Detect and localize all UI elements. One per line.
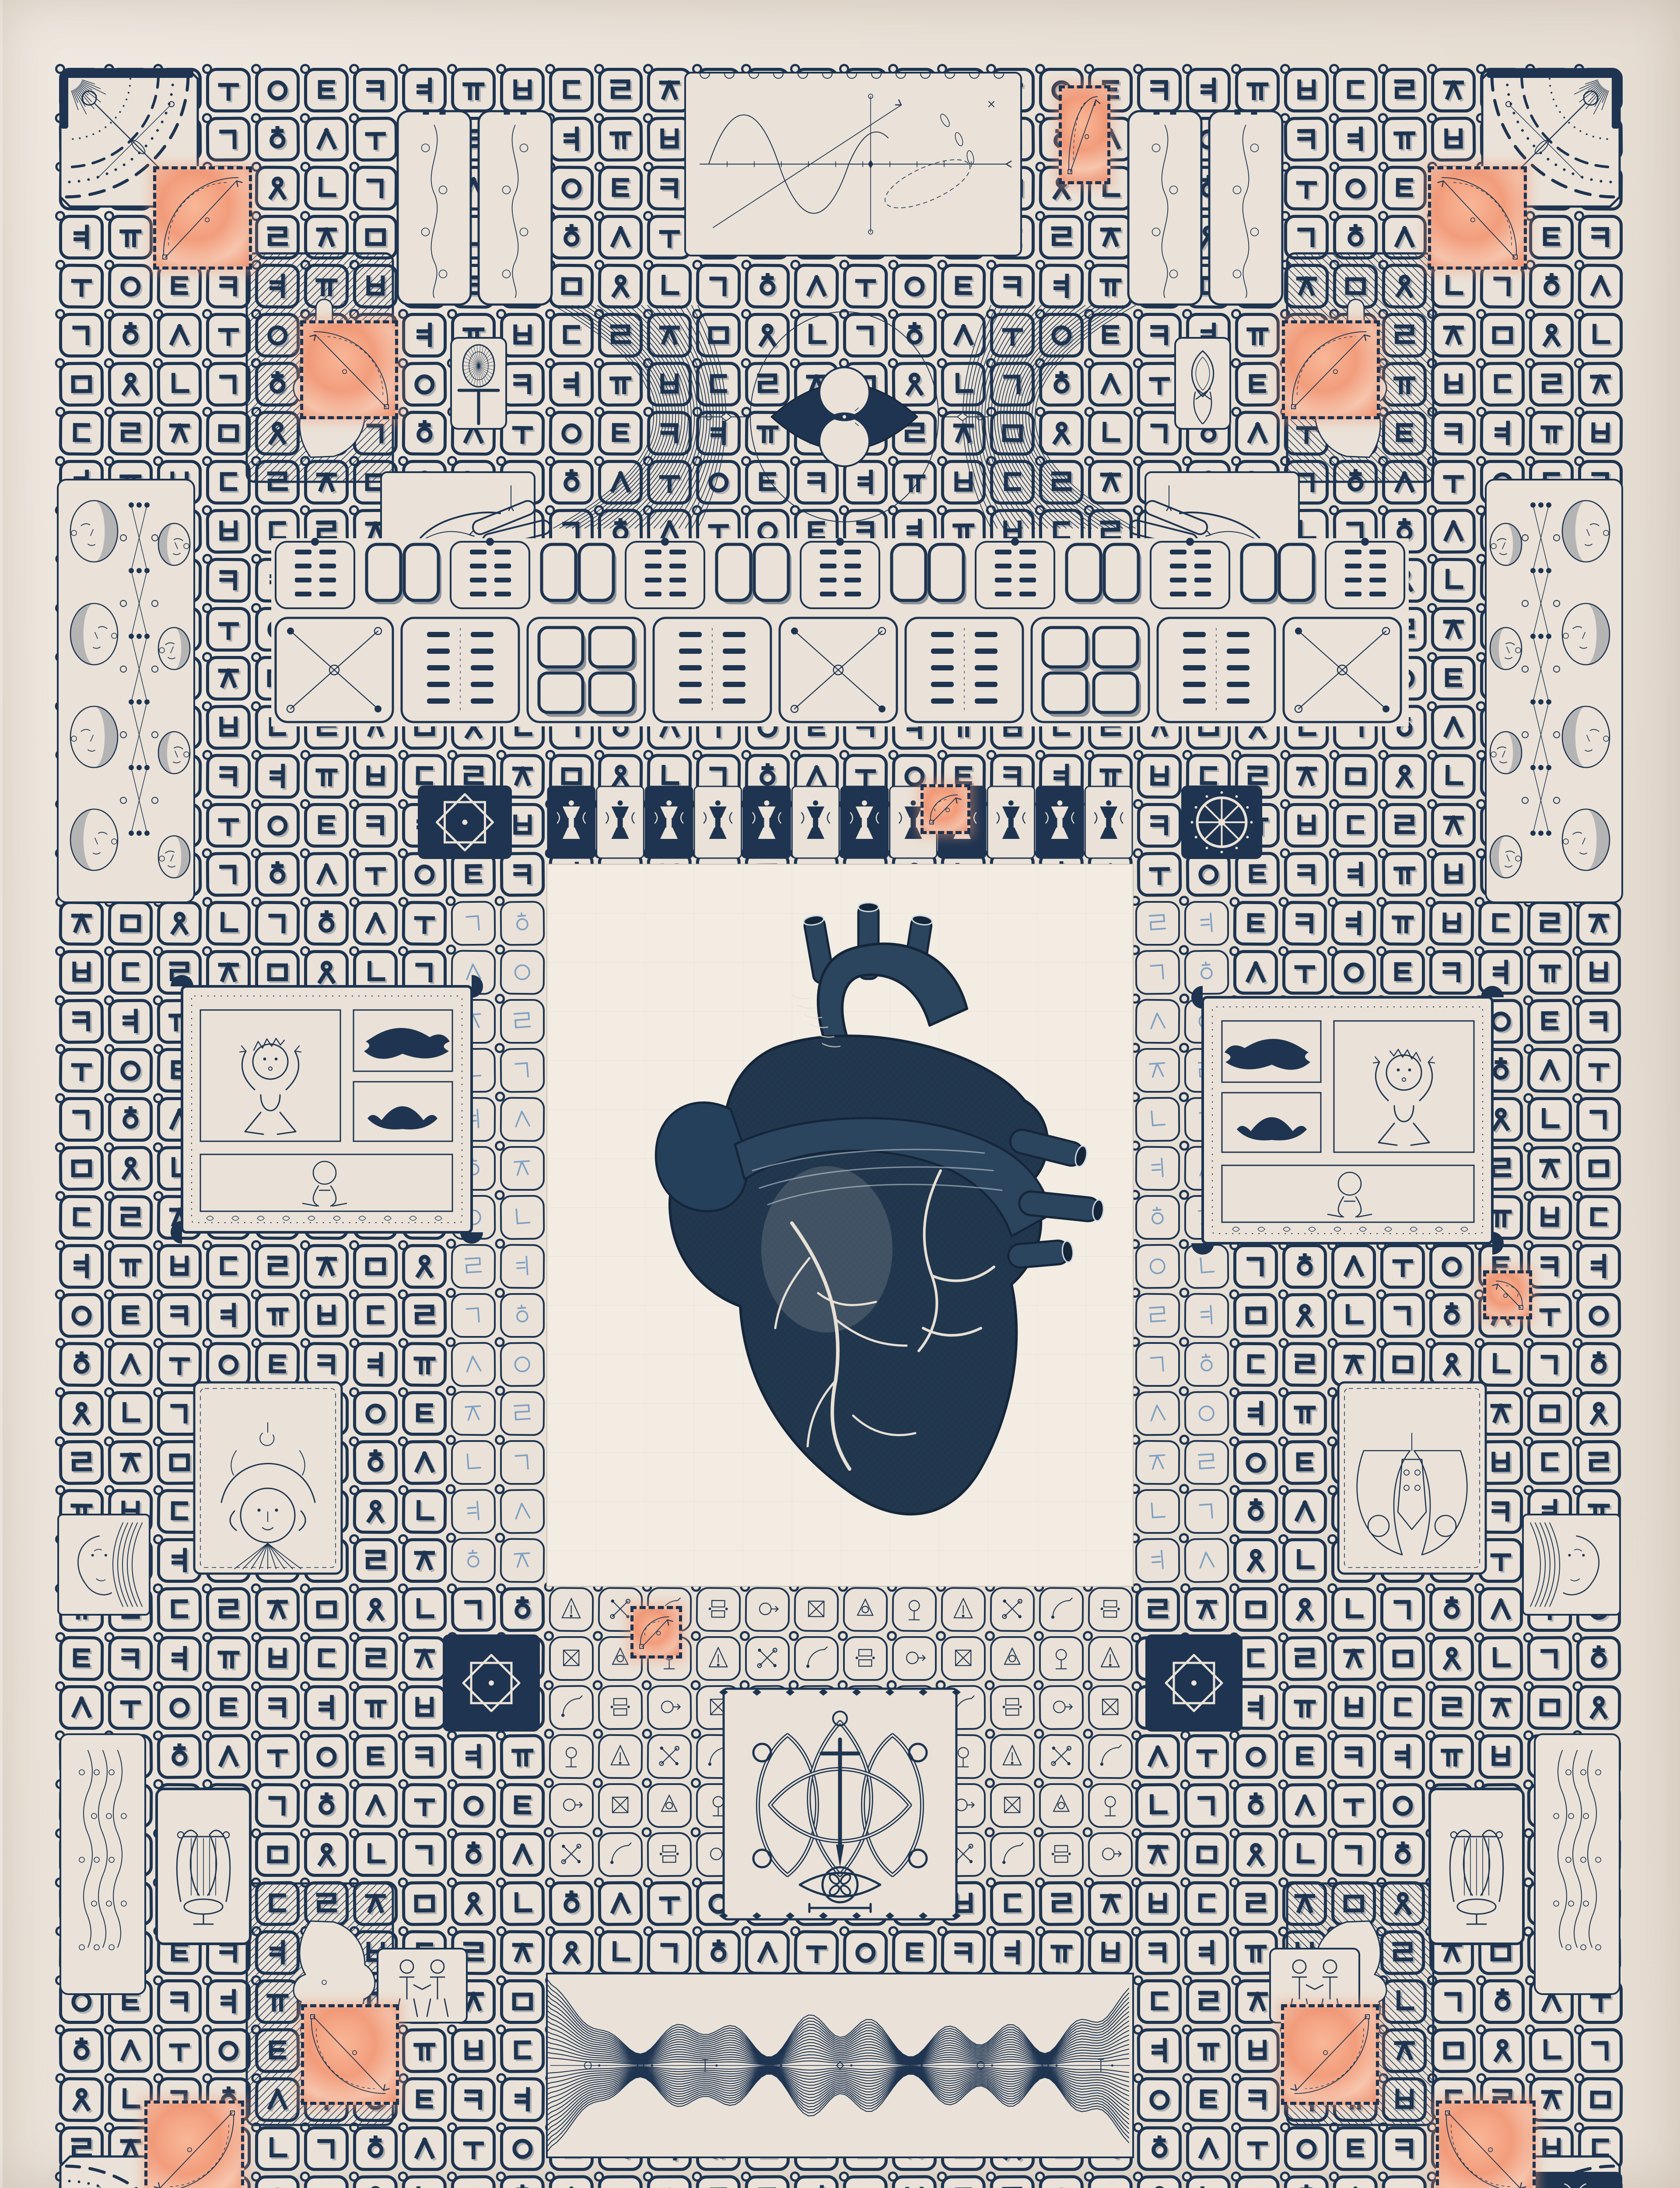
glyph-tile xyxy=(1431,754,1476,799)
glyph-tile xyxy=(59,411,104,456)
glyph-tile xyxy=(1088,1832,1133,1877)
glyph-tile xyxy=(1578,2028,1623,2073)
glyph-tile xyxy=(1235,2126,1280,2171)
glyph-tile xyxy=(1282,1832,1327,1877)
glyph-tile xyxy=(1478,901,1523,946)
glyph-tile xyxy=(1235,2028,1280,2073)
glyph-tile xyxy=(451,1783,496,1828)
glyph-tile xyxy=(1135,1440,1180,1485)
glyph-tile xyxy=(1284,2126,1329,2171)
glyph-tile xyxy=(402,411,447,456)
glyph-tile xyxy=(451,1244,496,1289)
glyph-tile xyxy=(255,117,300,162)
glyph-tile xyxy=(1331,1734,1376,1779)
glyph-tile xyxy=(1331,1783,1376,1828)
orange-square xyxy=(144,2100,244,2188)
glyph-tile xyxy=(1186,2028,1231,2073)
glyph-tile xyxy=(108,411,153,456)
glyph-tile xyxy=(353,2175,398,2188)
glyph-tile xyxy=(206,558,251,603)
glyph-tile xyxy=(255,1783,300,1828)
glyph-tile xyxy=(1380,1636,1425,1681)
glyph-tile xyxy=(1135,999,1180,1044)
artwork-canvas xyxy=(0,0,1680,2188)
glyph-tile xyxy=(451,1538,496,1583)
glyph-tile xyxy=(157,1979,202,2024)
glyph-tile xyxy=(451,1587,496,1632)
glyph-tile xyxy=(1088,1783,1133,1828)
glyph-tile xyxy=(647,1832,692,1877)
glyph-tile xyxy=(353,1391,398,1436)
glyph-tile xyxy=(304,117,349,162)
glyph-tile xyxy=(353,1342,398,1387)
glyph-tile xyxy=(1088,215,1133,259)
glyph-tile xyxy=(1088,1685,1133,1730)
glyph-tile xyxy=(1576,1440,1621,1485)
glyph-tile xyxy=(1135,1538,1180,1583)
glyph-tile xyxy=(304,1832,349,1877)
glyph-tile xyxy=(1039,1930,1084,1975)
glyph-tile xyxy=(1431,411,1476,456)
glyph-tile xyxy=(1137,2028,1182,2073)
glyph-tile xyxy=(1578,313,1623,358)
dark-tile xyxy=(1181,785,1262,859)
glyph-tile xyxy=(1039,1587,1084,1632)
glyph-tile xyxy=(206,2028,251,2073)
glyph-tile xyxy=(59,901,104,946)
glyph-tile xyxy=(1135,950,1180,995)
glyph-tile xyxy=(1233,1342,1278,1387)
glyph-tile xyxy=(304,1685,349,1730)
glyph-tile xyxy=(59,1293,104,1338)
glyph-tile xyxy=(1527,1244,1572,1289)
glyph-tile xyxy=(451,2126,496,2171)
glyph-tile xyxy=(892,1930,937,1975)
glyph-tile xyxy=(647,2175,692,2188)
glyph-tile xyxy=(1184,1391,1229,1436)
glyph-tile xyxy=(304,754,349,799)
glyph-tile xyxy=(353,117,398,162)
glyph-tile xyxy=(1135,1342,1180,1387)
glyph-tile xyxy=(500,1244,545,1289)
glyph-tile xyxy=(1527,999,1572,1044)
glyph-tile xyxy=(402,1881,447,1926)
glyph-tile xyxy=(990,1685,1035,1730)
glyph-tile xyxy=(1380,1587,1425,1632)
glyph-tile xyxy=(255,803,300,848)
glyph-tile xyxy=(451,1391,496,1436)
glyph-tile xyxy=(59,950,104,995)
glyph-tile xyxy=(1576,1195,1621,1240)
glyph-tile xyxy=(549,1636,594,1681)
glyph-tile xyxy=(990,1734,1035,1779)
glyph-tile xyxy=(1382,2126,1427,2171)
glyph-tile xyxy=(402,1440,447,1485)
figure-frame xyxy=(180,985,473,1234)
glyph-tile xyxy=(1331,1293,1376,1338)
glyph-tile xyxy=(1527,1342,1572,1387)
glyph-tile xyxy=(549,117,594,162)
glyph-tile xyxy=(59,1244,104,1289)
glyph-tile xyxy=(157,1293,202,1338)
glyph-tile xyxy=(206,264,251,309)
glyph-tile xyxy=(1478,1342,1523,1387)
trigram-band xyxy=(271,538,1409,726)
glyph-tile xyxy=(696,2175,741,2188)
glyph-tile xyxy=(843,1930,888,1975)
glyph-tile xyxy=(1184,1342,1229,1387)
glyph-tile xyxy=(1137,68,1182,112)
glyph-tile xyxy=(1235,411,1280,456)
glyph-tile xyxy=(1431,117,1476,162)
glyph-tile xyxy=(255,68,300,112)
glyph-tile xyxy=(1529,2028,1574,2073)
glyph-tile xyxy=(500,1195,545,1240)
glyph-tile xyxy=(1382,68,1427,112)
glyph-tile xyxy=(451,1342,496,1387)
glyph-tile xyxy=(451,1489,496,1534)
glyph-tile xyxy=(500,1048,545,1093)
faces-column xyxy=(1485,479,1623,903)
glyph-tile xyxy=(1576,1342,1621,1387)
glyph-tile xyxy=(402,1685,447,1730)
glyph-tile xyxy=(108,1146,153,1191)
glyph-tile xyxy=(500,1489,545,1534)
glyph-tile xyxy=(1135,1244,1180,1289)
glyph-tile xyxy=(1135,1587,1180,1632)
glyph-tile xyxy=(157,1636,202,1681)
glyph-tile xyxy=(1431,509,1476,554)
glyph-tile xyxy=(1576,1146,1621,1191)
glyph-tile xyxy=(1135,1881,1180,1926)
glyph-tile xyxy=(1135,1293,1180,1338)
glyph-tile xyxy=(353,1538,398,1583)
glyph-tile xyxy=(1088,1881,1133,1926)
glyph-tile xyxy=(549,1783,594,1828)
glyph-tile xyxy=(353,901,398,946)
glyph-tile xyxy=(549,1587,594,1632)
knot-panel xyxy=(722,1687,958,1921)
glyph-tile xyxy=(255,1244,300,1289)
orange-square xyxy=(630,1606,682,1659)
glyph-tile xyxy=(255,1734,300,1779)
tall-doodle xyxy=(396,109,472,306)
glyph-tile xyxy=(1184,1734,1229,1779)
glyph-tile xyxy=(696,1587,741,1632)
glyph-tile xyxy=(1233,1587,1278,1632)
glyph-tile xyxy=(549,1832,594,1877)
glyph-tile xyxy=(598,1881,643,1926)
glyph-tile xyxy=(108,1685,153,1730)
glyph-tile xyxy=(451,1293,496,1338)
glyph-tile xyxy=(1576,1391,1621,1436)
glyph-tile xyxy=(500,1146,545,1191)
glyph-tile xyxy=(1233,950,1278,995)
orange-square xyxy=(920,784,970,834)
glyph-tile xyxy=(402,1783,447,1828)
glyph-tile xyxy=(794,1587,839,1632)
glyph-tile xyxy=(255,754,300,799)
figure-frame xyxy=(1201,996,1494,1245)
glyph-tile xyxy=(402,68,447,112)
glyph-tile xyxy=(59,1097,104,1142)
glyph-tile xyxy=(1529,264,1574,309)
glyph-tile xyxy=(1527,1195,1572,1240)
glyph-tile xyxy=(206,1636,251,1681)
glyph-tile xyxy=(1429,1244,1474,1289)
glyph-tile xyxy=(500,1930,545,1975)
glyph-tile xyxy=(1039,2175,1084,2188)
glyph-tile xyxy=(1478,1685,1523,1730)
glyph-tile xyxy=(990,1636,1035,1681)
glyph-tile xyxy=(1333,2175,1378,2188)
glyph-tile xyxy=(353,754,398,799)
glyph-tile xyxy=(794,1930,839,1975)
glyph-tile xyxy=(1331,901,1376,946)
glyph-tile xyxy=(500,901,545,946)
glyph-tile xyxy=(255,1685,300,1730)
glyph-tile xyxy=(500,999,545,1044)
glyph-tile xyxy=(451,1832,496,1877)
glyph-tile xyxy=(206,1734,251,1779)
glyph-tile xyxy=(402,1342,447,1387)
glyph-tile xyxy=(1429,950,1474,995)
glyph-tile xyxy=(1282,1538,1327,1583)
glyph-tile xyxy=(1480,411,1525,456)
glyph-tile xyxy=(1135,1734,1180,1779)
glyph-tile xyxy=(59,1440,104,1485)
glyph-tile xyxy=(549,1930,594,1975)
glyph-tile xyxy=(1431,460,1476,505)
glyph-tile xyxy=(1184,1783,1229,1828)
lyre-panel xyxy=(155,1788,252,1945)
glyph-tile xyxy=(1088,1587,1133,1632)
waveform xyxy=(547,1974,1133,2157)
glyph-tile xyxy=(1576,1293,1621,1338)
glyph-tile xyxy=(451,2077,496,2122)
dark-tile xyxy=(443,1634,540,1732)
glyph-tile xyxy=(1186,2175,1231,2188)
glyph-tile xyxy=(1233,1832,1278,1877)
glyph-tile xyxy=(353,1832,398,1877)
glyph-tile xyxy=(108,215,153,259)
orange-square xyxy=(1428,166,1527,270)
glyph-tile xyxy=(1233,1881,1278,1926)
glyph-tile xyxy=(1135,1783,1180,1828)
glyph-tile xyxy=(59,2028,104,2073)
glyph-tile xyxy=(1233,1391,1278,1436)
glyph-tile xyxy=(549,166,594,211)
glyph-tile xyxy=(1282,1636,1327,1681)
glyph-tile xyxy=(1233,1440,1278,1485)
glyph-tile xyxy=(353,803,398,848)
glyph-tile xyxy=(745,1587,790,1632)
glyph-tile xyxy=(598,117,643,162)
glyph-tile xyxy=(549,1734,594,1779)
glyph-tile xyxy=(1382,2175,1427,2188)
glyph-tile xyxy=(1039,1636,1084,1681)
glyph-tile xyxy=(59,264,104,309)
glyph-tile xyxy=(1184,1489,1229,1534)
glyph-tile xyxy=(1478,1587,1523,1632)
glyph-tile xyxy=(1382,852,1427,897)
glyph-tile xyxy=(108,1048,153,1093)
glyph-tile xyxy=(500,2175,545,2188)
glyph-tile xyxy=(1284,2175,1329,2188)
glyph-tile xyxy=(108,362,153,407)
glyph-tile xyxy=(1429,901,1474,946)
glyph-tile xyxy=(1576,1048,1621,1093)
glyph-tile xyxy=(500,1538,545,1583)
glyph-tile xyxy=(990,1930,1035,1975)
tall-doodle xyxy=(1127,109,1203,306)
glyph-tile xyxy=(1282,1783,1327,1828)
glyph-tile xyxy=(157,901,202,946)
glyph-tile xyxy=(1235,2077,1280,2122)
glyph-tile xyxy=(255,852,300,897)
glyph-tile xyxy=(1137,1979,1182,2024)
glyph-tile xyxy=(1431,558,1476,603)
glyph-tile xyxy=(353,852,398,897)
glyph-tile xyxy=(1578,411,1623,456)
glyph-tile xyxy=(1233,1293,1278,1338)
glyph-tile xyxy=(500,2028,545,2073)
glyph-tile xyxy=(206,1342,251,1387)
glyph-tile xyxy=(451,68,496,112)
orange-square xyxy=(300,320,398,419)
glyph-tile xyxy=(843,2175,888,2188)
glyph-tile xyxy=(1137,852,1182,897)
glyph-tile xyxy=(1331,1685,1376,1730)
glyph-tile xyxy=(1233,1538,1278,1583)
glyph-tile xyxy=(1380,1685,1425,1730)
glyph-tile xyxy=(1088,1930,1133,1975)
glyph-tile xyxy=(402,362,447,407)
glyph-tile xyxy=(108,1440,153,1485)
glyph-tile xyxy=(353,166,398,211)
glyph-tile xyxy=(108,1293,153,1338)
glyph-tile xyxy=(157,264,202,309)
glyph-tile xyxy=(451,1734,496,1779)
glyph-tile xyxy=(304,1244,349,1289)
glyph-tile xyxy=(1480,313,1525,358)
glyph-tile xyxy=(1137,2077,1182,2122)
glyph-tile xyxy=(1429,1342,1474,1387)
glyph-tile xyxy=(1331,1587,1376,1632)
glyph-tile xyxy=(1282,1244,1327,1289)
glyph-tile xyxy=(598,215,643,259)
glyph-tile xyxy=(206,1293,251,1338)
glyph-tile xyxy=(1380,1342,1425,1387)
glyph-tile xyxy=(402,1832,447,1877)
glyph-tile xyxy=(59,1195,104,1240)
glyph-tile xyxy=(1431,705,1476,750)
glyph-tile xyxy=(304,1734,349,1779)
glyph-tile xyxy=(1578,215,1623,259)
glyph-tile xyxy=(353,1293,398,1338)
glyph-tile xyxy=(451,1440,496,1485)
glyph-tile xyxy=(1186,68,1231,112)
glyph-tile xyxy=(990,1832,1035,1877)
glyph-tile xyxy=(598,1783,643,1828)
glyph-tile xyxy=(353,2126,398,2171)
glyph-tile xyxy=(500,1734,545,1779)
glyph-tile xyxy=(108,264,153,309)
glyph-tile xyxy=(1282,1587,1327,1632)
glyph-tile xyxy=(1088,1734,1133,1779)
glyph-tile xyxy=(1431,362,1476,407)
glyph-tile xyxy=(500,2077,545,2122)
glyph-tile xyxy=(1333,166,1378,211)
glyph-tile xyxy=(745,1636,790,1681)
glyph-tile xyxy=(402,1538,447,1583)
glyph-tile xyxy=(1088,2175,1133,2188)
glyph-tile xyxy=(1529,411,1574,456)
glyph-tile xyxy=(1576,1097,1621,1142)
glyph-tile xyxy=(1039,215,1084,259)
glyph-tile xyxy=(59,1391,104,1436)
glyph-tile xyxy=(108,2028,153,2073)
glyph-tile xyxy=(598,1734,643,1779)
glyph-tile xyxy=(304,852,349,897)
glyph-tile xyxy=(206,460,251,505)
glyph-tile xyxy=(549,1685,594,1730)
glyph-tile xyxy=(1527,1685,1572,1730)
glyph-tile xyxy=(157,362,202,407)
glyph-tile xyxy=(1039,1881,1084,1926)
glyph-tile xyxy=(598,166,643,211)
glyph-tile xyxy=(1576,999,1621,1044)
glyph-tile xyxy=(1380,1734,1425,1779)
glyph-tile xyxy=(255,1293,300,1338)
glyph-tile xyxy=(745,1930,790,1975)
glyph-tile xyxy=(1282,1440,1327,1485)
glyph-tile xyxy=(1578,362,1623,407)
glyph-tile xyxy=(1480,1979,1525,2024)
lyre-panel xyxy=(1428,1788,1525,1945)
glyph-tile xyxy=(157,1244,202,1289)
glyph-tile xyxy=(500,1979,545,2024)
glyph-tile xyxy=(206,901,251,946)
glyph-tile xyxy=(353,1587,398,1632)
glyph-tile xyxy=(108,1195,153,1240)
glyph-tile xyxy=(1331,1636,1376,1681)
glyph-tile xyxy=(1184,1538,1229,1583)
glyph-tile xyxy=(1576,901,1621,946)
glyph-tile xyxy=(1184,1293,1229,1338)
glyph-tile xyxy=(157,2028,202,2073)
glyph-tile xyxy=(1478,1636,1523,1681)
glyph-tile xyxy=(1039,1832,1084,1877)
glyph-tile xyxy=(451,2175,496,2188)
tall-doodle xyxy=(477,109,553,306)
glyph-tile xyxy=(1135,1930,1180,1975)
glyph-tile xyxy=(1529,313,1574,358)
eye-assembly xyxy=(548,302,1141,532)
glyph-tile xyxy=(157,1685,202,1730)
orange-square xyxy=(1282,320,1380,419)
glyph-tile xyxy=(598,1930,643,1975)
glyph-tile xyxy=(1380,1244,1425,1289)
dark-tile xyxy=(1145,1634,1242,1732)
glyph-tile xyxy=(206,656,251,701)
glyph-tile xyxy=(598,68,643,112)
glyph-tile xyxy=(255,1587,300,1632)
glyph-tile xyxy=(1137,754,1182,799)
glyph-tile xyxy=(206,803,251,848)
glyph-tile xyxy=(1235,2175,1280,2188)
glyph-tile xyxy=(304,1587,349,1632)
